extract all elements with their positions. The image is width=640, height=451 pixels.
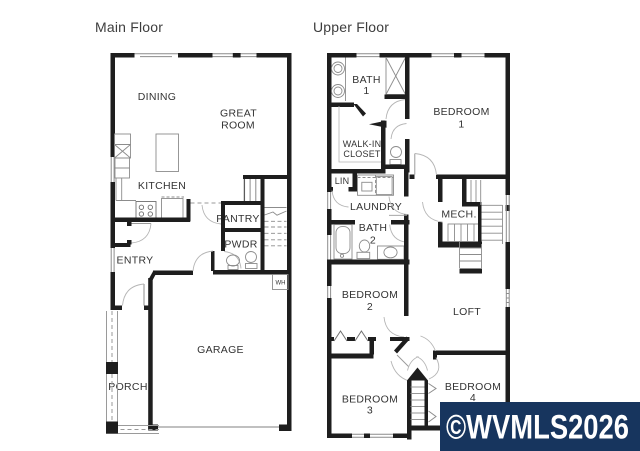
svg-text:©WVMLS2026: ©WVMLS2026 xyxy=(446,409,629,447)
svg-text:GARAGE: GARAGE xyxy=(197,344,244,356)
svg-text:WH: WH xyxy=(276,281,286,287)
svg-text:Upper Floor: Upper Floor xyxy=(313,19,389,35)
svg-text:1: 1 xyxy=(458,119,464,131)
svg-text:KITCHEN: KITCHEN xyxy=(138,180,186,192)
svg-text:3: 3 xyxy=(367,405,373,417)
svg-text:PORCH: PORCH xyxy=(108,381,147,393)
svg-text:BEDROOM: BEDROOM xyxy=(342,289,398,301)
svg-text:LAUNDRY: LAUNDRY xyxy=(350,201,402,213)
svg-text:2: 2 xyxy=(370,235,376,247)
svg-text:WALK-IN: WALK-IN xyxy=(343,139,382,149)
svg-text:GREAT: GREAT xyxy=(220,108,257,120)
svg-text:BATH: BATH xyxy=(359,222,387,234)
svg-text:ROOM: ROOM xyxy=(221,119,255,131)
svg-text:ENTRY: ENTRY xyxy=(117,255,154,267)
svg-text:LIN: LIN xyxy=(335,176,350,186)
svg-text:1: 1 xyxy=(363,85,369,97)
svg-text:PWDR: PWDR xyxy=(224,239,257,251)
svg-text:LOFT: LOFT xyxy=(453,306,481,318)
svg-text:BEDROOM: BEDROOM xyxy=(433,106,489,118)
svg-text:Main Floor: Main Floor xyxy=(95,19,163,35)
svg-text:DINING: DINING xyxy=(138,91,177,103)
svg-text:MECH.: MECH. xyxy=(441,209,476,221)
svg-text:CLOSET: CLOSET xyxy=(343,149,381,159)
svg-text:2: 2 xyxy=(367,301,373,313)
